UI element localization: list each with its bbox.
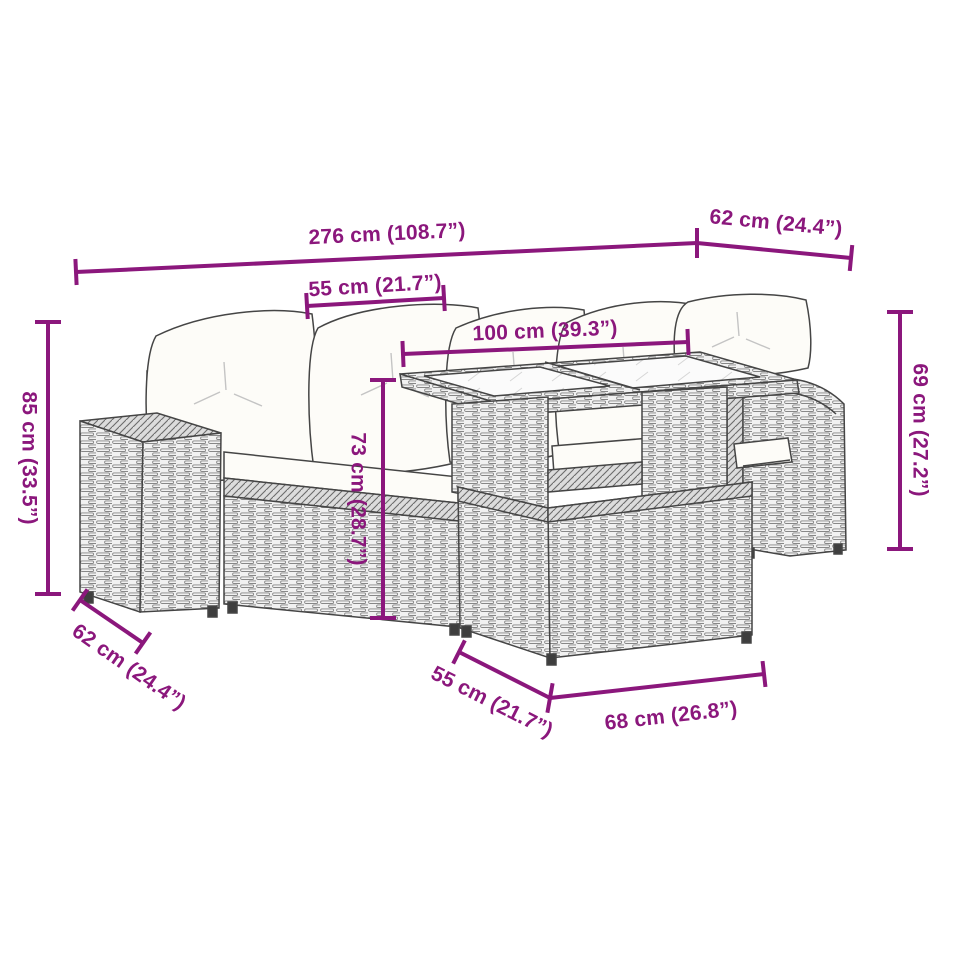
left-armrest (80, 413, 221, 612)
dimension-diagram: 276 cm (108.7”) 62 cm (24.4”) 55 cm (21.… (0, 0, 955, 955)
furniture-illustration (0, 0, 955, 955)
dim-label-table-height: 73 cm (28.7”) (348, 432, 369, 565)
table-base-box (458, 482, 752, 665)
dim-line-side-depth-top (697, 243, 852, 271)
dim-label-sofa-height: 85 cm (33.5”) (19, 391, 40, 524)
dim-label-chair-height: 69 cm (27.2”) (910, 363, 931, 496)
dim-line-table-base-width (550, 661, 765, 698)
